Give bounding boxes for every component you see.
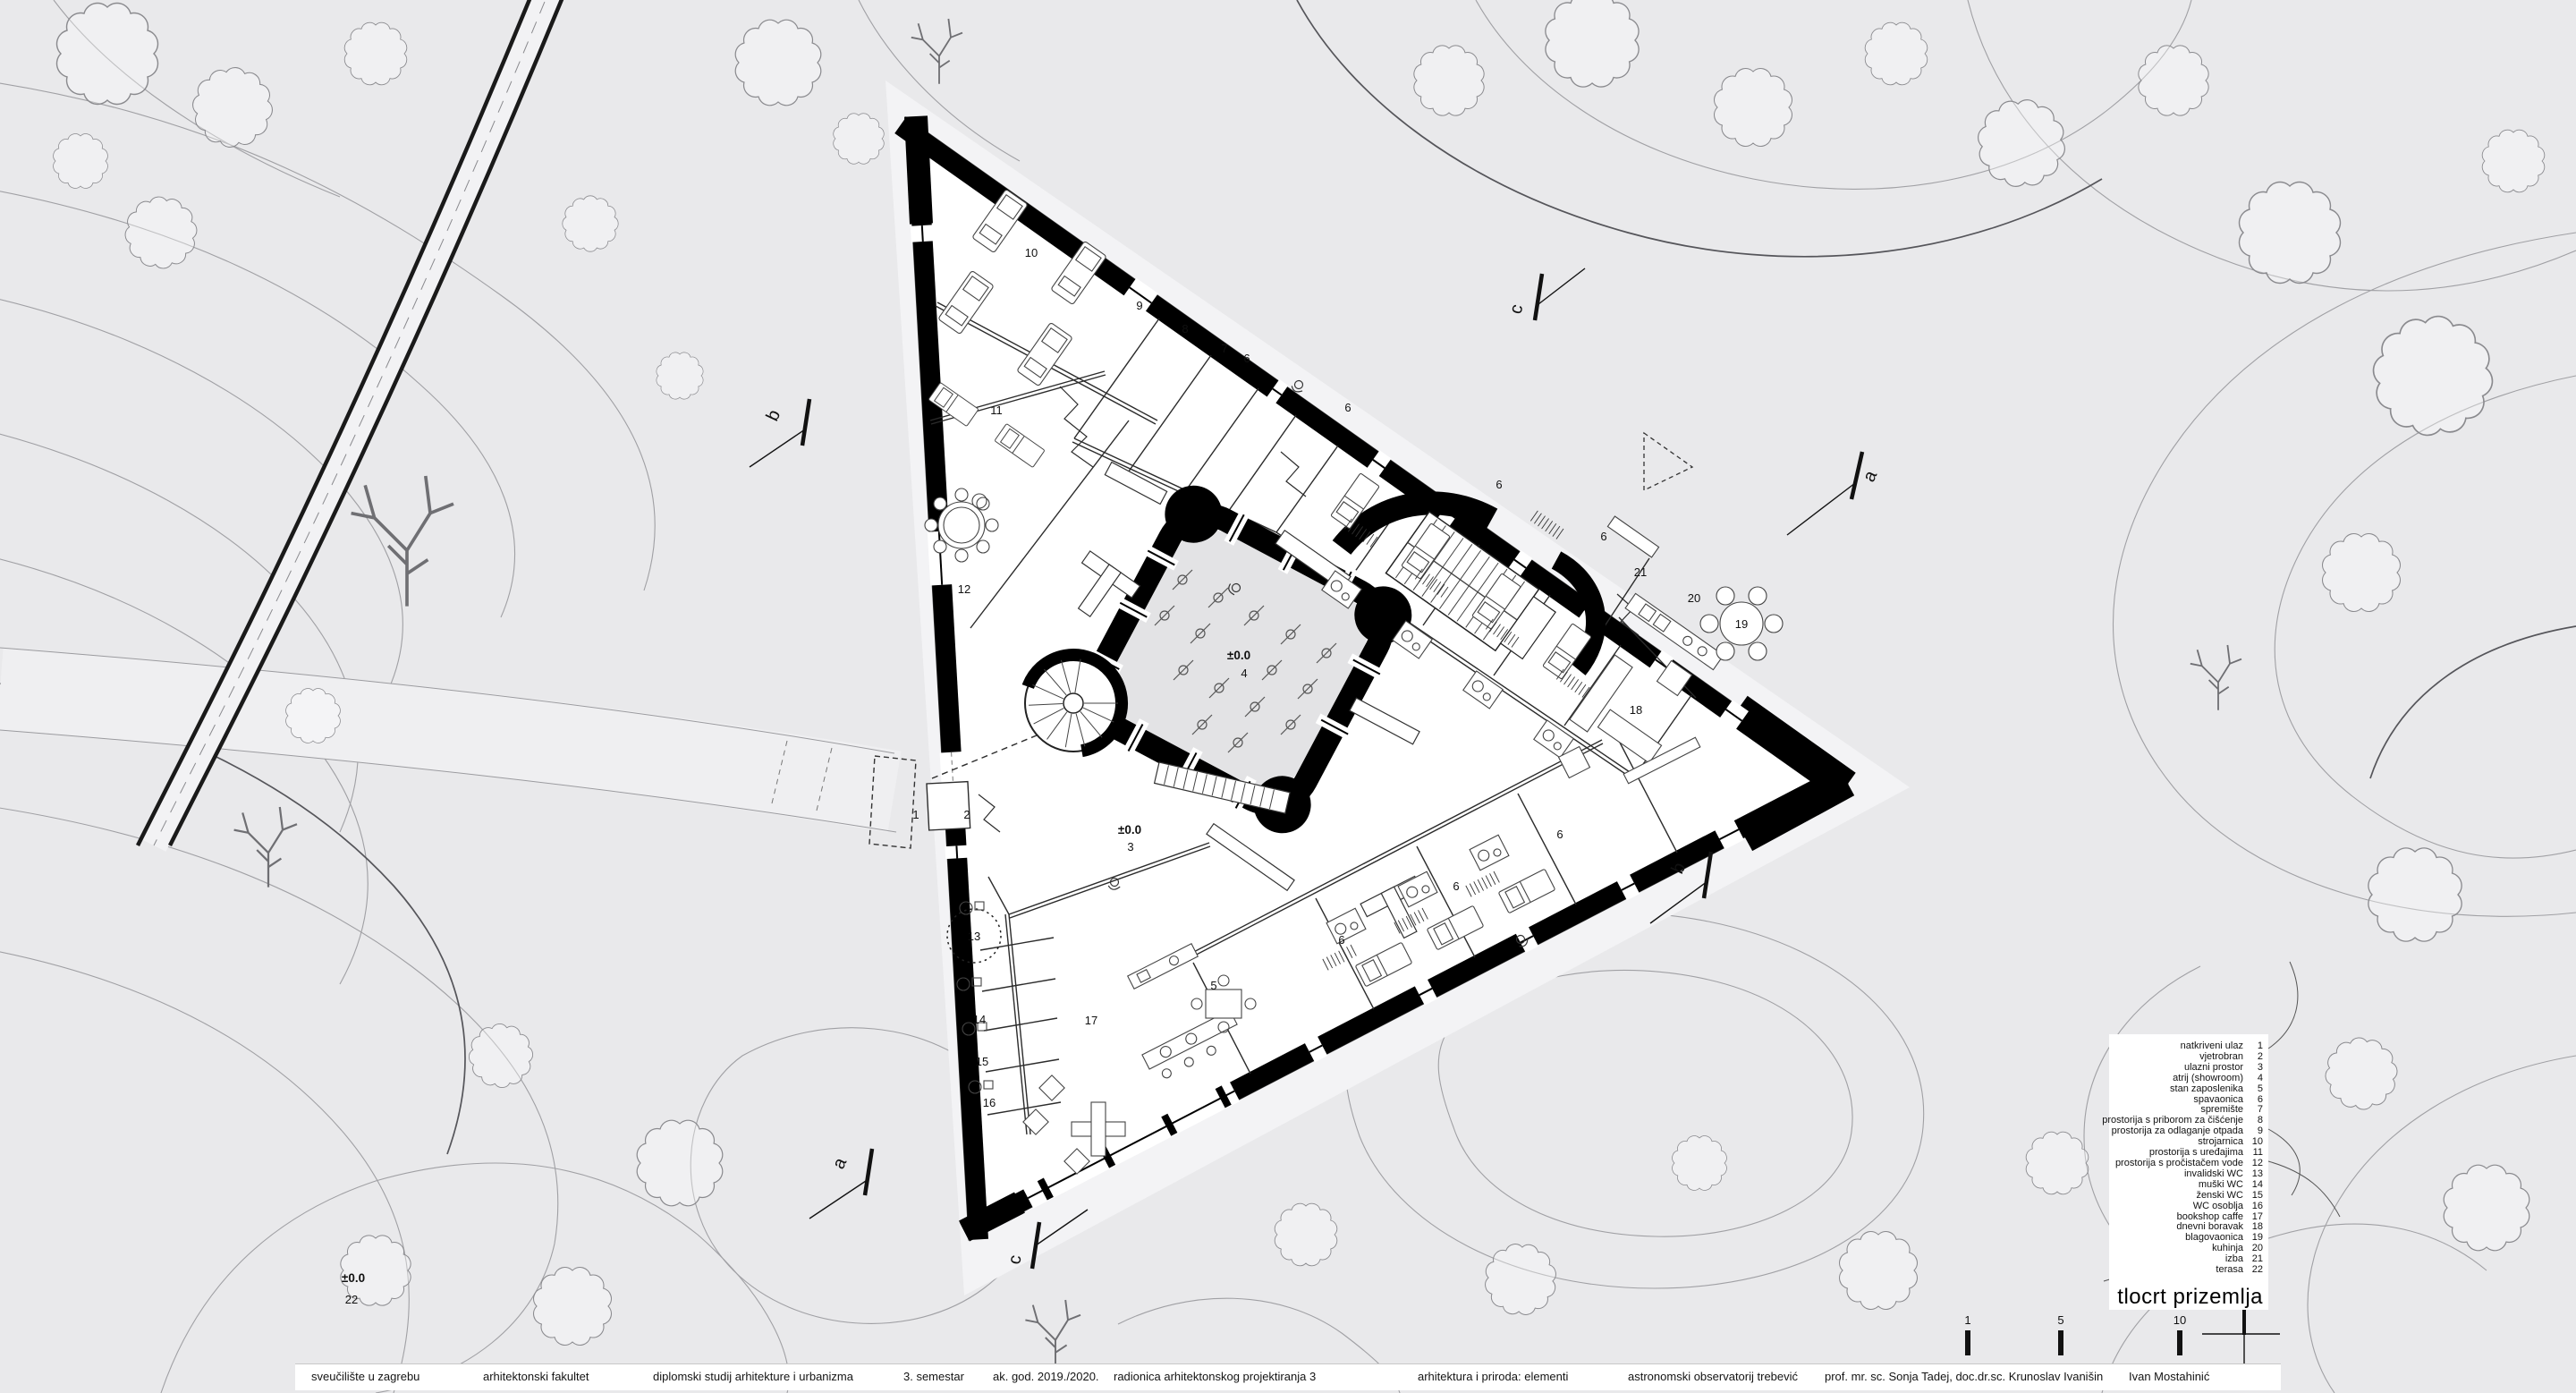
room-label: 21 bbox=[1634, 565, 1647, 579]
footer-professors: prof. mr. sc. Sonja Tadej, doc.dr.sc. Kr… bbox=[1825, 1370, 2103, 1383]
room-label: 18 bbox=[1630, 703, 1642, 717]
room-label: 2 bbox=[963, 808, 970, 821]
footer-program: diplomski studij arhitekture i urbanizma bbox=[653, 1370, 853, 1383]
terrace-number-label: 22 bbox=[345, 1293, 358, 1306]
room-label: 19 bbox=[1735, 617, 1748, 631]
legend-label: ulazni prostor bbox=[2184, 1063, 2243, 1074]
room-label: 13 bbox=[968, 930, 980, 943]
legend: natkriveni ulaz1 vjetrobran2 ulazni pros… bbox=[2109, 1034, 2268, 1310]
legend-label: terasa bbox=[2216, 1265, 2243, 1276]
scale-tick-label: 1 bbox=[1964, 1313, 1970, 1327]
footer-project: astronomski observatorij trebević bbox=[1628, 1370, 1798, 1383]
room-label: 16 bbox=[983, 1096, 996, 1109]
legend-item: terasa22 bbox=[2216, 1265, 2263, 1276]
footer-student: Ivan Mostahinić bbox=[2129, 1370, 2209, 1383]
scale-tick-label: 5 bbox=[2057, 1313, 2063, 1327]
footer-theme: arhitektura i priroda: elementi bbox=[1418, 1370, 1568, 1383]
legend-label: muški WC bbox=[2199, 1180, 2243, 1191]
room-label: 1 bbox=[912, 808, 919, 821]
footer-bar: sveučilište u zagrebu arhitektonski faku… bbox=[295, 1363, 2281, 1390]
room-label: 6 bbox=[1453, 879, 1459, 893]
spiral-stair bbox=[1025, 655, 1122, 752]
legend-item: WC osoblja16 bbox=[2193, 1202, 2263, 1212]
room-label: 6 bbox=[1600, 530, 1606, 543]
room-label: 6 bbox=[1344, 401, 1351, 414]
room-label: 15 bbox=[976, 1055, 988, 1068]
room-label: 3 bbox=[1127, 840, 1133, 854]
site-level-label: ±0.0 bbox=[342, 1271, 365, 1285]
room-label: 11 bbox=[990, 403, 1003, 417]
room-label: 12 bbox=[958, 582, 970, 596]
room-label: 6 bbox=[1243, 352, 1250, 365]
legend-item: muški WC14 bbox=[2199, 1180, 2263, 1191]
legend-item: stan zaposlenika5 bbox=[2170, 1084, 2263, 1095]
room-label: 14 bbox=[973, 1013, 986, 1026]
room-label: 20 bbox=[1688, 591, 1700, 605]
atrium-level-label: ±0.0 bbox=[1227, 649, 1250, 662]
drawing-sheet: 10 9 8 7 6 6 6 6 11 12 21 20 19 18 1 2 3… bbox=[0, 0, 2576, 1393]
page-title: tlocrt prizemlja bbox=[2117, 1285, 2263, 1310]
legend-item: ulazni prostor3 bbox=[2184, 1063, 2263, 1074]
footer-academic-year: ak. god. 2019./2020. bbox=[993, 1370, 1099, 1383]
legend-label: stan zaposlenika bbox=[2170, 1084, 2243, 1095]
room-label: 6 bbox=[1496, 478, 1502, 491]
legend-label: invalidski WC bbox=[2184, 1169, 2243, 1180]
entrance-level-label: ±0.0 bbox=[1118, 823, 1141, 837]
legend-label: ženski WC bbox=[2196, 1191, 2243, 1202]
room-label: 9 bbox=[1136, 299, 1142, 312]
legend-number: 15 bbox=[2248, 1191, 2263, 1202]
room-label: 4 bbox=[1241, 667, 1247, 680]
footer-workshop: radionica arhitektonskog projektiranja 3 bbox=[1114, 1370, 1316, 1383]
legend-label: WC osoblja bbox=[2193, 1202, 2243, 1212]
room-label: 17 bbox=[1085, 1014, 1097, 1027]
legend-number: 4 bbox=[2248, 1074, 2263, 1084]
footer-semester: 3. semestar bbox=[903, 1370, 964, 1383]
legend-number: 5 bbox=[2248, 1084, 2263, 1095]
legend-item: invalidski WC13 bbox=[2184, 1169, 2263, 1180]
footer-university: sveučilište u zagrebu bbox=[311, 1370, 419, 1383]
legend-number: 3 bbox=[2248, 1063, 2263, 1074]
footer-faculty: arhitektonski fakultet bbox=[483, 1370, 589, 1383]
legend-item: ženski WC15 bbox=[2196, 1191, 2263, 1202]
room-label: 8 bbox=[1182, 322, 1188, 336]
room-label: 7 bbox=[1221, 342, 1227, 355]
legend-number: 16 bbox=[2248, 1202, 2263, 1212]
room-label: 5 bbox=[1210, 979, 1216, 992]
legend-number: 22 bbox=[2248, 1265, 2263, 1276]
room-label: 6 bbox=[1556, 828, 1563, 841]
legend-number: 13 bbox=[2248, 1169, 2263, 1180]
room-label: 10 bbox=[1025, 246, 1038, 259]
room-label: 6 bbox=[1338, 933, 1344, 947]
legend-number: 14 bbox=[2248, 1180, 2263, 1191]
legend-item: atrij (showroom)4 bbox=[2173, 1074, 2263, 1084]
legend-label: atrij (showroom) bbox=[2173, 1074, 2243, 1084]
round-table bbox=[925, 488, 998, 562]
scale-tick-label: 10 bbox=[2173, 1313, 2186, 1327]
